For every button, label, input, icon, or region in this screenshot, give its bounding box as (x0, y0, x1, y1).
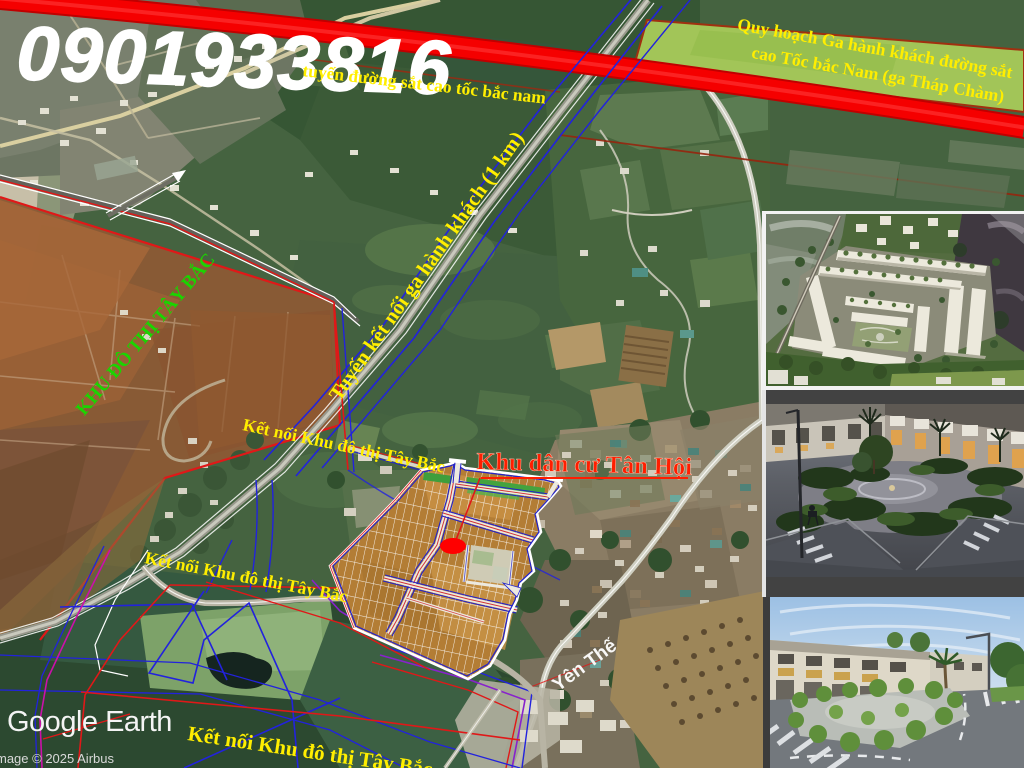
svg-text:mage © 2025 Airbus: mage © 2025 Airbus (0, 751, 114, 766)
svg-text:0901933816: 0901933816 (15, 11, 452, 111)
svg-text:Khu dân cư Tân Hội: Khu dân cư Tân Hội (476, 448, 693, 481)
svg-text:Google Earth: Google Earth (7, 706, 172, 738)
